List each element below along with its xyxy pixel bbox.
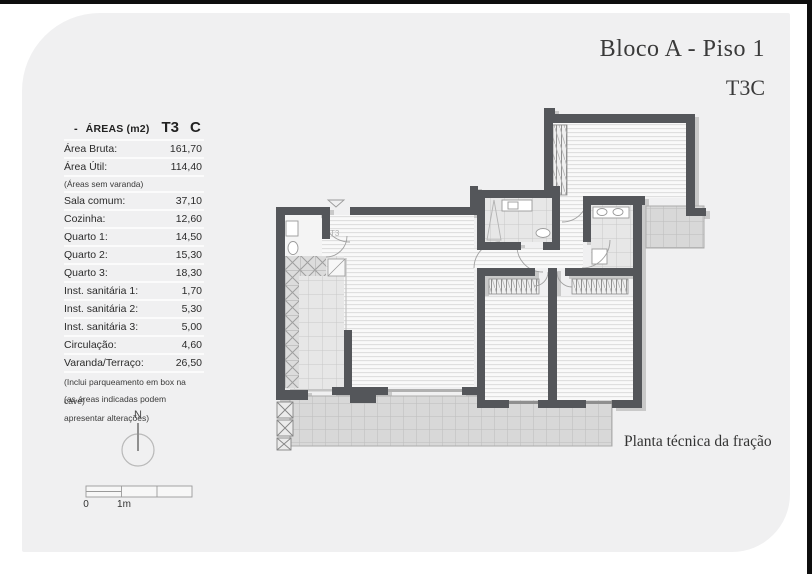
page-title: Bloco A - Piso 1: [600, 36, 765, 63]
table-row: Circulação: 4,60: [64, 337, 204, 355]
areas-table-header: - ÁREAS (m2) T3 C: [64, 119, 204, 141]
areas-table: - ÁREAS (m2) T3 C Área Bruta: 161,70 Áre…: [64, 119, 204, 407]
row-label: Inst. sanitária 1:: [64, 283, 138, 299]
table-row: Cozinha: 12,60: [64, 211, 204, 229]
row-value: 26,50: [176, 355, 204, 371]
kitchen-counter-top: [284, 256, 326, 276]
header-typology: T3: [162, 119, 180, 136]
row-label: Área Útil:: [64, 159, 107, 175]
fraction-title: T3C: [600, 75, 765, 101]
kitchen-counter-left: [284, 276, 299, 388]
row-value: 12,60: [176, 211, 204, 227]
row-value: 5,30: [182, 301, 204, 317]
row-value: 114,40: [171, 159, 204, 175]
bedroom2-floor: [557, 296, 633, 400]
table-footnote: (Inclui parqueamento em box na cave): [64, 373, 204, 390]
shaft-boxes: [277, 402, 293, 450]
table-row: Inst. sanitária 3: 5,00: [64, 319, 204, 337]
floor-plan: T3: [260, 100, 716, 460]
row-value: 161,70: [170, 141, 204, 157]
table-note: (Áreas sem varanda): [64, 177, 204, 193]
row-label: Área Bruta:: [64, 141, 117, 157]
row-label: Varanda/Terraço:: [64, 355, 144, 371]
page: { "title": { "line1": "Bloco A - Piso 1"…: [0, 0, 812, 574]
header-fraction: C: [190, 119, 201, 136]
title-block: Bloco A - Piso 1 T3C: [600, 36, 765, 101]
row-label: Sala comum:: [64, 193, 125, 209]
scale-meter-label: 1m: [117, 499, 131, 510]
table-row: Quarto 1: 14,50: [64, 229, 204, 247]
table-row: Área Bruta: 161,70: [64, 141, 204, 159]
table-row: Varanda/Terraço: 26,50: [64, 355, 204, 373]
table-row: Área Útil: 114,40: [64, 159, 204, 177]
scale-bar: 0 1m: [78, 480, 208, 510]
row-value: 1,70: [182, 283, 204, 299]
row-label: Inst. sanitária 2:: [64, 301, 138, 317]
row-value: 5,00: [182, 319, 204, 335]
row-value: 14,50: [176, 229, 204, 245]
row-value: 18,30: [176, 265, 204, 281]
table-row: Quarto 3: 18,30: [64, 265, 204, 283]
row-label: Circulação:: [64, 337, 117, 353]
table-row: Sala comum: 37,10: [64, 193, 204, 211]
north-label: N: [134, 409, 142, 421]
entry-label: T3: [330, 229, 340, 238]
bedroom2-wardrobe: [572, 279, 628, 294]
bedroom3-floor: [553, 123, 686, 198]
entrance-marker: [328, 200, 344, 207]
plan-caption: Planta técnica da fração: [624, 433, 772, 451]
north-compass: N: [113, 404, 163, 470]
row-label: Quarto 1:: [64, 229, 108, 245]
row-label: Cozinha:: [64, 211, 105, 227]
table-row: Inst. sanitária 1: 1,70: [64, 283, 204, 301]
row-value: 37,10: [176, 193, 204, 209]
row-label: Quarto 3:: [64, 265, 108, 281]
row-value: 15,30: [176, 247, 204, 263]
scale-zero-label: 0: [83, 499, 89, 510]
header-dash: -: [74, 123, 78, 135]
bedroom1-wardrobe: [489, 279, 539, 294]
black-right-border: [807, 0, 812, 574]
header-label: ÁREAS (m2): [86, 123, 150, 135]
row-label: Inst. sanitária 3:: [64, 319, 138, 335]
row-label: Quarto 2:: [64, 247, 108, 263]
black-top-border: [0, 0, 812, 4]
bedroom1-floor: [485, 296, 548, 400]
table-row: Inst. sanitária 2: 5,30: [64, 301, 204, 319]
table-row: Quarto 2: 15,30: [64, 247, 204, 265]
row-value: 4,60: [182, 337, 204, 353]
bedroom3-wardrobe: [553, 125, 567, 195]
